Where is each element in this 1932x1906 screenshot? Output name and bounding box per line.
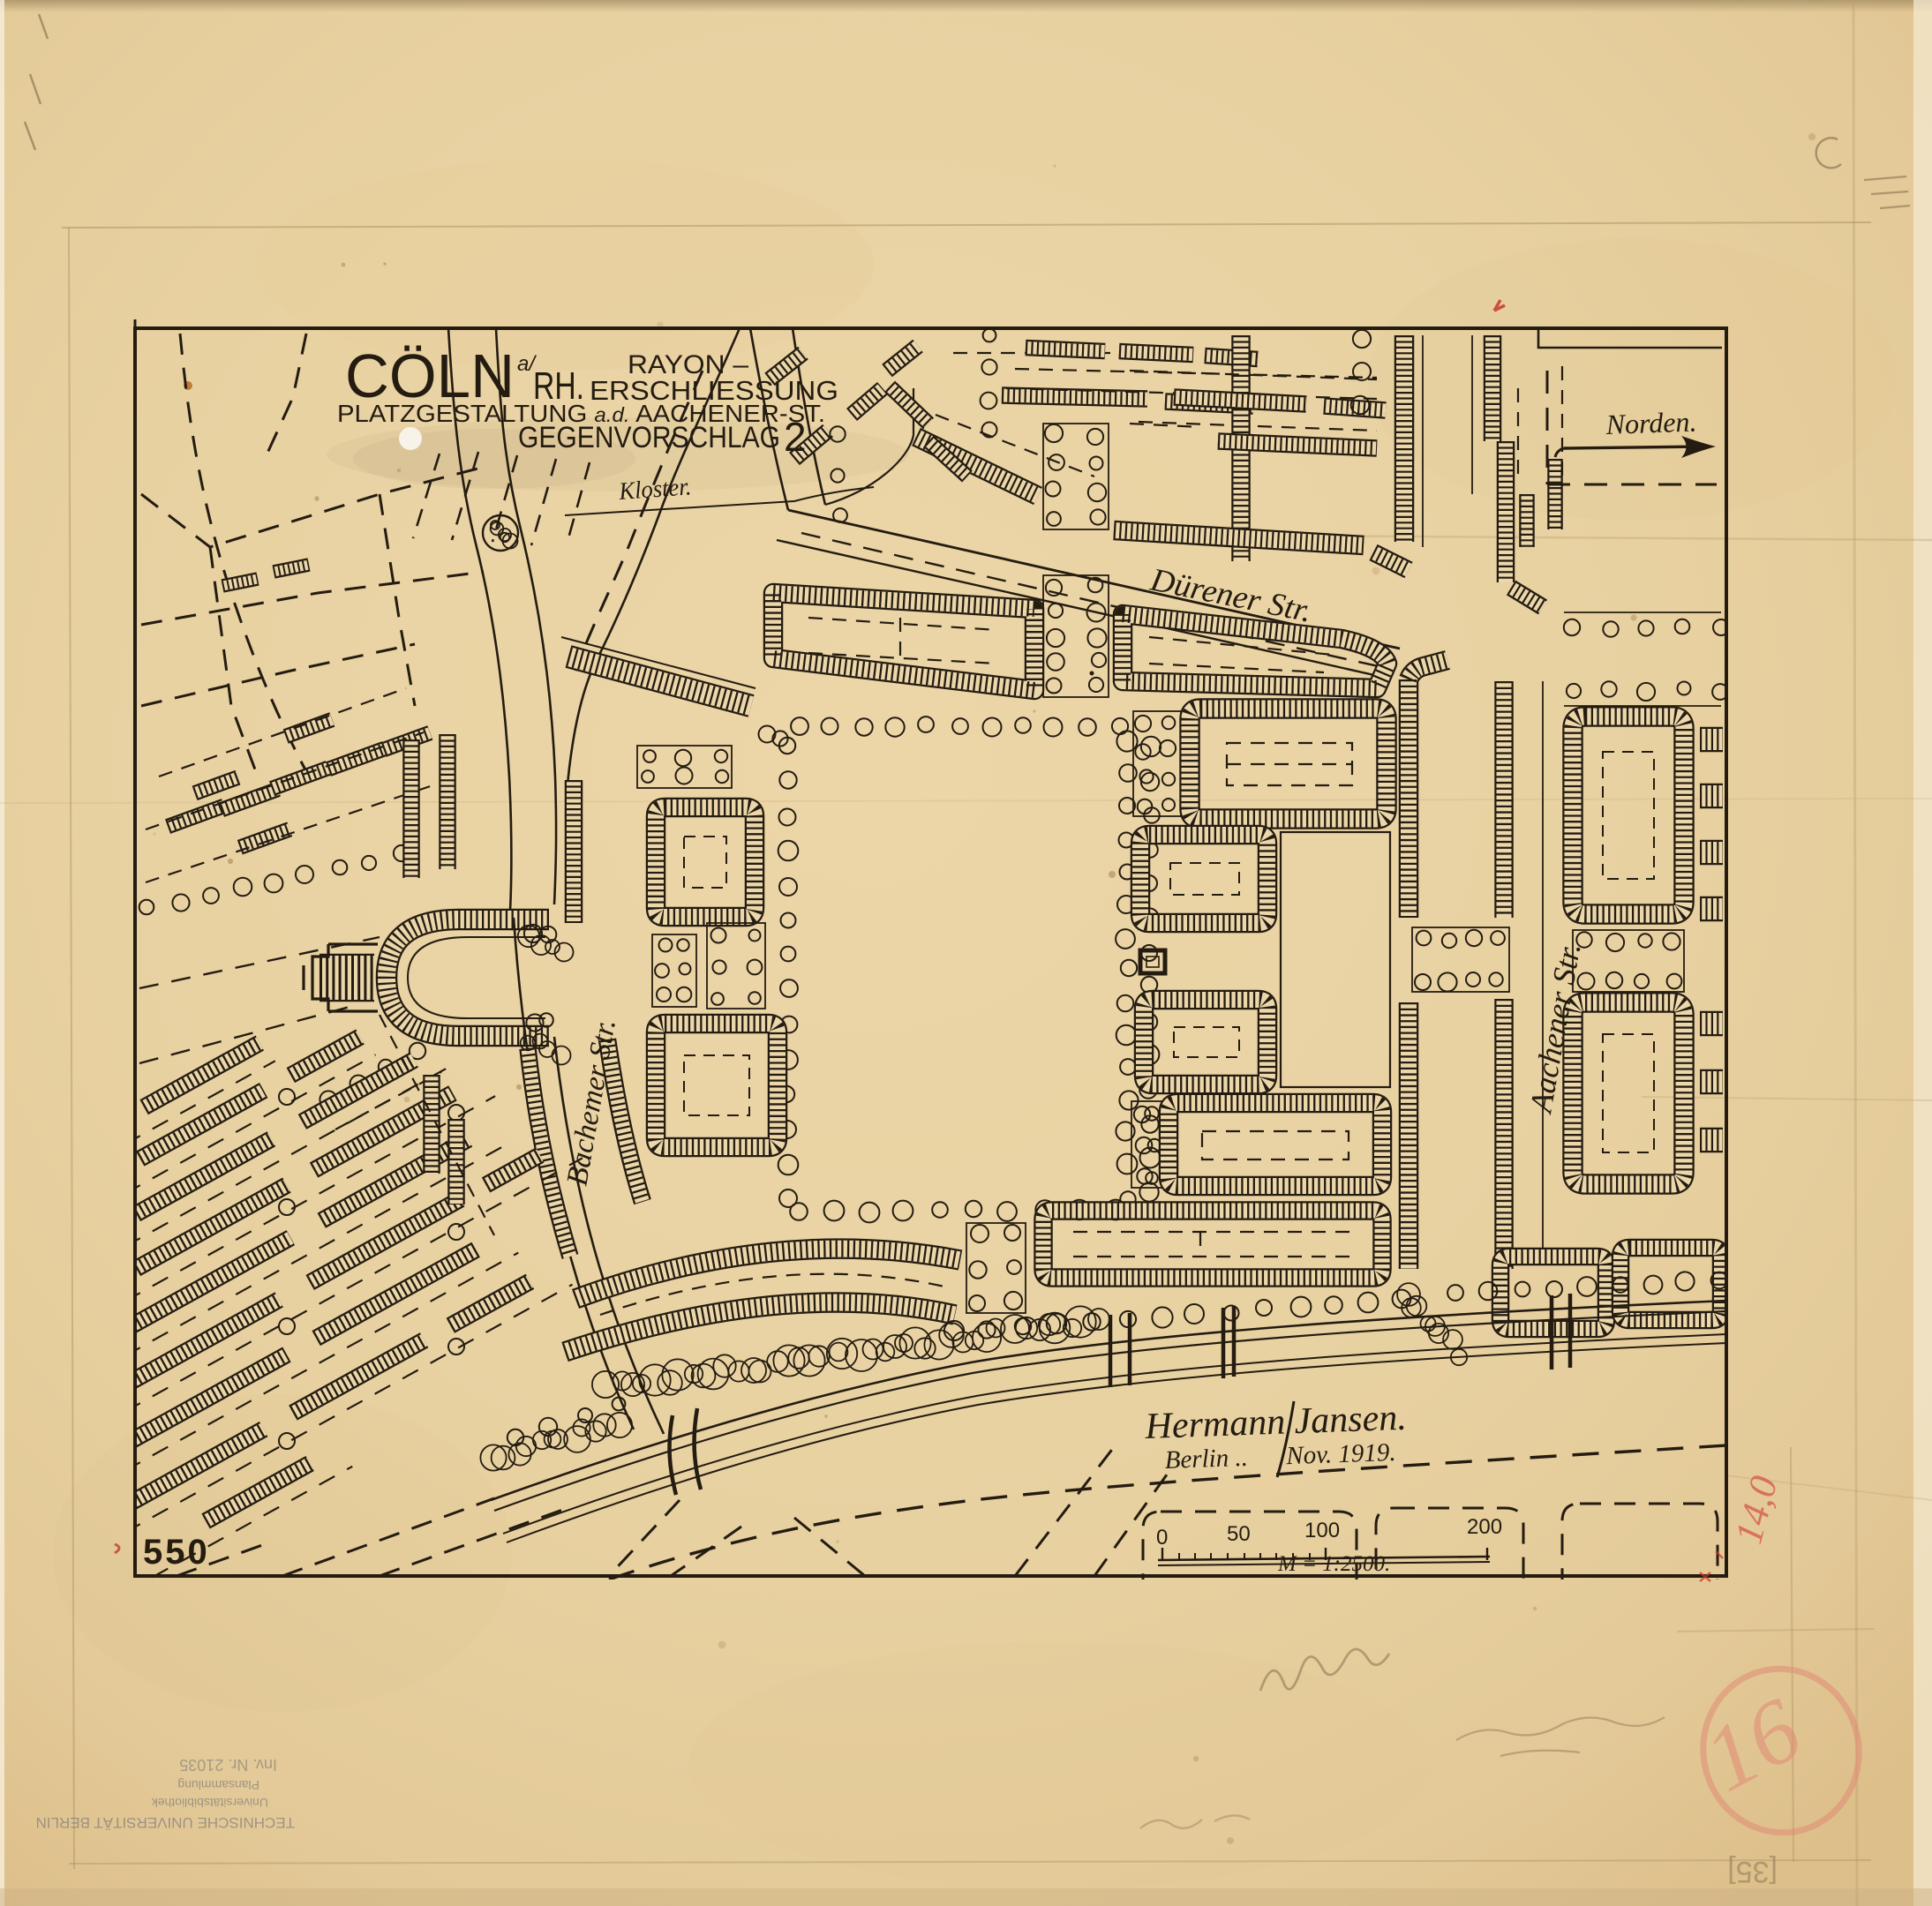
svg-text:50: 50 <box>1227 1522 1251 1546</box>
svg-text:Universitätsbibliothek: Universitätsbibliothek <box>151 1796 268 1810</box>
svg-text:Kloster.: Kloster. <box>617 473 692 506</box>
svg-text:550: 550 <box>143 1533 210 1572</box>
svg-text:GEGENVORSCHLAG: GEGENVORSCHLAG <box>518 421 780 454</box>
svg-text:Plansammlung: Plansammlung <box>177 1778 259 1792</box>
svg-text:TECHNISCHE UNIVERSITÄT BERLIN: TECHNISCHE UNIVERSITÄT BERLIN <box>36 1814 295 1831</box>
svg-text:Norden.: Norden. <box>1605 405 1697 440</box>
svg-text:200: 200 <box>1467 1515 1502 1539</box>
svg-text:[35]: [35] <box>1727 1855 1778 1888</box>
svg-text:0: 0 <box>1156 1526 1168 1550</box>
svg-text:M = 1:2500.: M = 1:2500. <box>1277 1552 1390 1576</box>
svg-text:2: 2 <box>784 414 807 460</box>
svg-text:100: 100 <box>1304 1519 1340 1542</box>
svg-text:Inv. Nr. 21035: Inv. Nr. 21035 <box>179 1756 277 1774</box>
